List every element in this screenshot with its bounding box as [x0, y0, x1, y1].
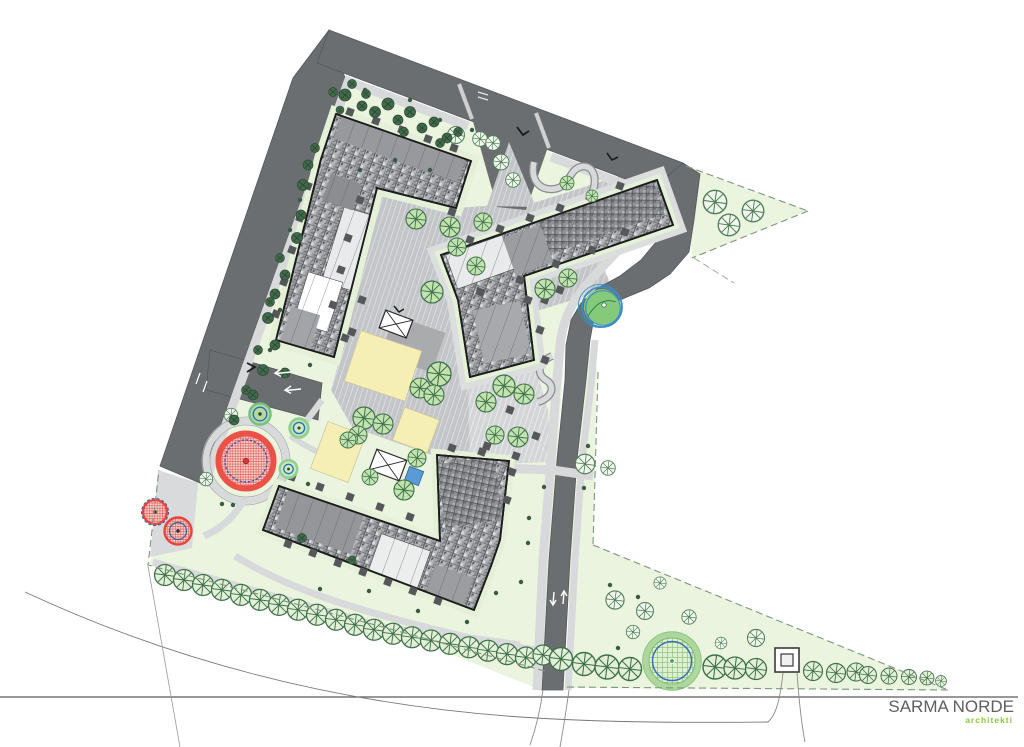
svg-text:SARMA NORDE: SARMA NORDE: [888, 697, 1014, 716]
svg-text:architekti: architekti: [965, 715, 1013, 725]
